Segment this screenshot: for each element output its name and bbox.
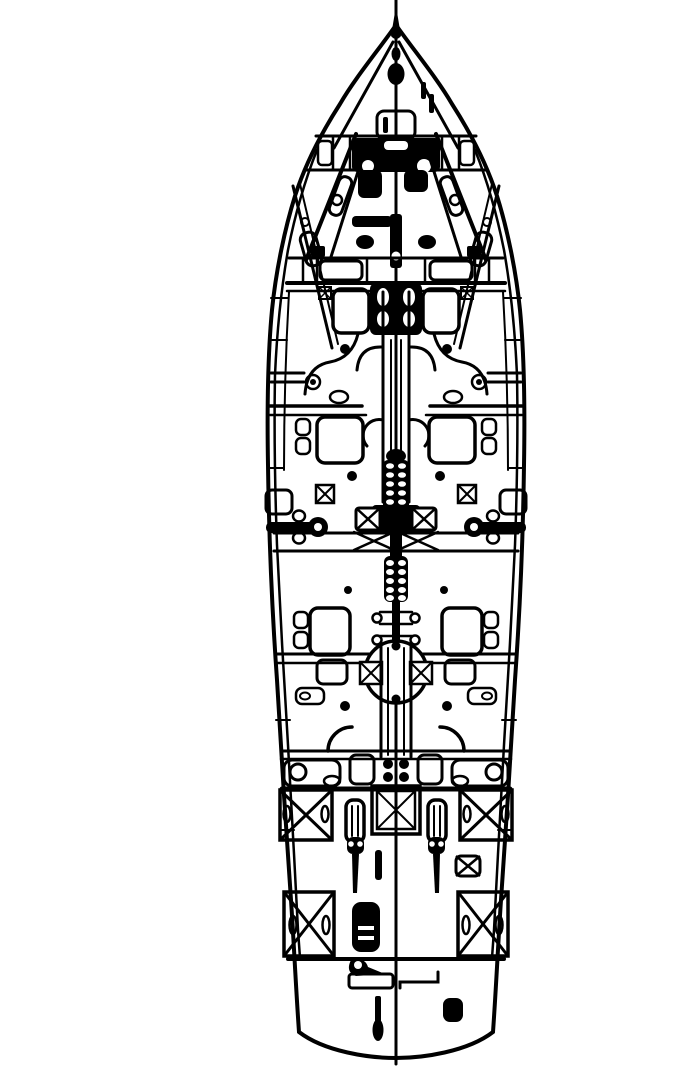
winch-center <box>314 523 322 531</box>
halyard-box-mirror <box>412 508 436 530</box>
deck-dot-mirror <box>435 471 445 481</box>
chain-stopper <box>352 216 392 227</box>
bow-frame-bar <box>383 117 388 133</box>
winch-base-mirror <box>478 522 526 533</box>
step-slot <box>386 472 394 478</box>
mooring-cleat-mirror <box>418 235 436 249</box>
liferaft-strap <box>358 926 374 930</box>
ladder-slot <box>386 587 394 593</box>
mizzen-dot <box>392 642 401 651</box>
stern-post-foot <box>373 1019 384 1041</box>
clutch-block <box>370 283 422 335</box>
step-slot-mirror <box>398 463 406 469</box>
drain-dot-mirror <box>399 759 409 769</box>
deck-dot <box>347 471 357 481</box>
ladder-slot <box>398 595 406 601</box>
ladder-slot-mirror <box>398 569 406 575</box>
ladder-slot-mirror <box>398 595 406 601</box>
windlass-slot <box>384 141 408 150</box>
windlass-drum <box>404 170 428 192</box>
drain-dot <box>399 772 409 782</box>
step-slot <box>398 490 406 496</box>
track-stop-mirror <box>467 246 481 257</box>
liferaft-strap <box>358 936 374 940</box>
ladder-slot <box>386 560 394 566</box>
ladder-slot <box>386 569 394 575</box>
clutch-slot-mirror <box>402 337 420 345</box>
head-dot <box>438 841 444 847</box>
ladder-slot <box>398 578 406 584</box>
rung-ring <box>373 614 382 623</box>
drain-dot-mirror <box>399 772 409 782</box>
deck-dot <box>340 701 350 711</box>
yacht-deck-plan <box>0 0 697 1080</box>
head-dot-mirror <box>438 841 444 847</box>
step-slot <box>398 472 406 478</box>
rung-ring <box>373 636 382 645</box>
winch-center-mirror <box>470 523 478 531</box>
mizzen-dot <box>392 695 401 704</box>
ladder-slot-mirror <box>398 560 406 566</box>
ladder-slot <box>386 595 394 601</box>
mooring-cleat <box>356 235 374 249</box>
step-slot-mirror <box>398 472 406 478</box>
deck-dot <box>440 586 448 594</box>
forestay-fitting <box>392 47 401 61</box>
portlight-dot <box>476 379 482 385</box>
portlight-dot <box>310 379 316 385</box>
rung-ring-mirror <box>411 636 420 645</box>
winch-base <box>266 522 314 533</box>
mooring-cleat <box>418 235 436 249</box>
rung-ring-mirror <box>411 614 420 623</box>
ladder-slot <box>386 578 394 584</box>
head-dot <box>348 841 354 847</box>
mizzen-box <box>360 662 382 684</box>
step-slot-mirror <box>398 490 406 496</box>
head-dot <box>357 841 363 847</box>
head-dot-mirror <box>429 841 435 847</box>
deck-dot <box>344 586 352 594</box>
ladder-slot-mirror <box>398 587 406 593</box>
bow-cleat <box>429 94 434 113</box>
step-slot <box>386 499 394 505</box>
step-slot <box>386 463 394 469</box>
rung-ring <box>411 614 420 623</box>
ladder-slot <box>398 560 406 566</box>
step-slot <box>398 481 406 487</box>
deck-dot-mirror <box>440 586 448 594</box>
mast-column <box>390 505 402 561</box>
mizzen-box <box>410 662 432 684</box>
yacht-deck-plan-canvas <box>0 0 697 1080</box>
bow-cleat <box>421 82 426 99</box>
mizzen-box-mirror <box>410 662 432 684</box>
stern-fitting <box>443 998 463 1022</box>
deck-dot <box>442 701 452 711</box>
step-slot <box>386 481 394 487</box>
step-slot <box>386 490 394 496</box>
drain-dot <box>383 772 393 782</box>
halyard-box <box>412 508 436 530</box>
portlight-dot-mirror <box>476 379 482 385</box>
tiller-hole <box>354 961 362 969</box>
drain-dot <box>383 759 393 769</box>
forestay-fitting <box>388 63 405 85</box>
track-stop <box>311 246 325 257</box>
bow-tip <box>391 6 401 39</box>
step-slot-mirror <box>398 481 406 487</box>
deck-dot <box>435 471 445 481</box>
windlass-drum <box>358 170 382 198</box>
track-stop <box>467 246 481 257</box>
halyard-box <box>356 508 380 530</box>
winch-base <box>478 522 526 533</box>
stern-post <box>375 996 381 1022</box>
step-slot-mirror <box>398 499 406 505</box>
clutch-slot <box>402 337 420 345</box>
deck-dot-mirror <box>442 701 452 711</box>
ladder-slot-mirror <box>398 578 406 584</box>
ladder-slot <box>398 569 406 575</box>
deck-bar <box>375 850 382 880</box>
winch-center <box>470 523 478 531</box>
step-slot <box>398 463 406 469</box>
drain-dot <box>399 759 409 769</box>
step-slot <box>398 499 406 505</box>
rung-ring <box>411 636 420 645</box>
head-dot <box>429 841 435 847</box>
ladder-slot <box>398 587 406 593</box>
clutch-slot <box>372 337 390 345</box>
